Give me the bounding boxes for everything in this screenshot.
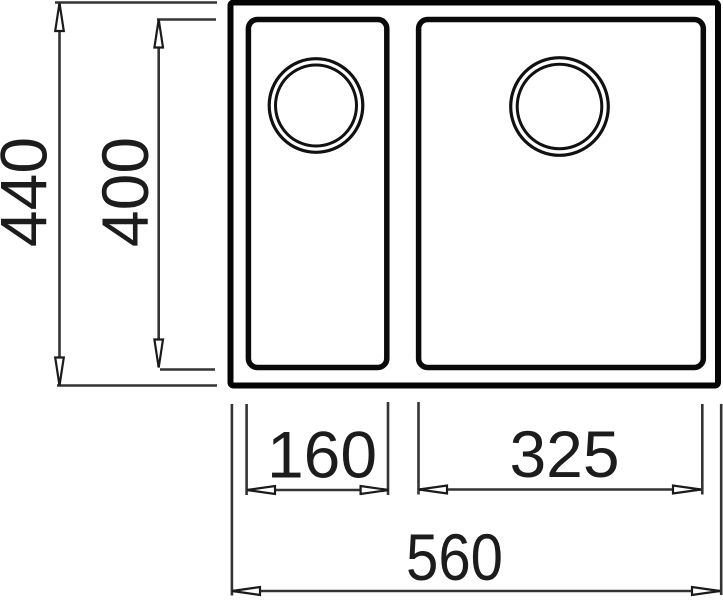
svg-text:160: 160	[267, 418, 377, 492]
svg-text:560: 560	[406, 520, 503, 594]
svg-text:400: 400	[88, 137, 162, 247]
svg-text:325: 325	[509, 417, 619, 491]
svg-text:440: 440	[0, 137, 61, 247]
